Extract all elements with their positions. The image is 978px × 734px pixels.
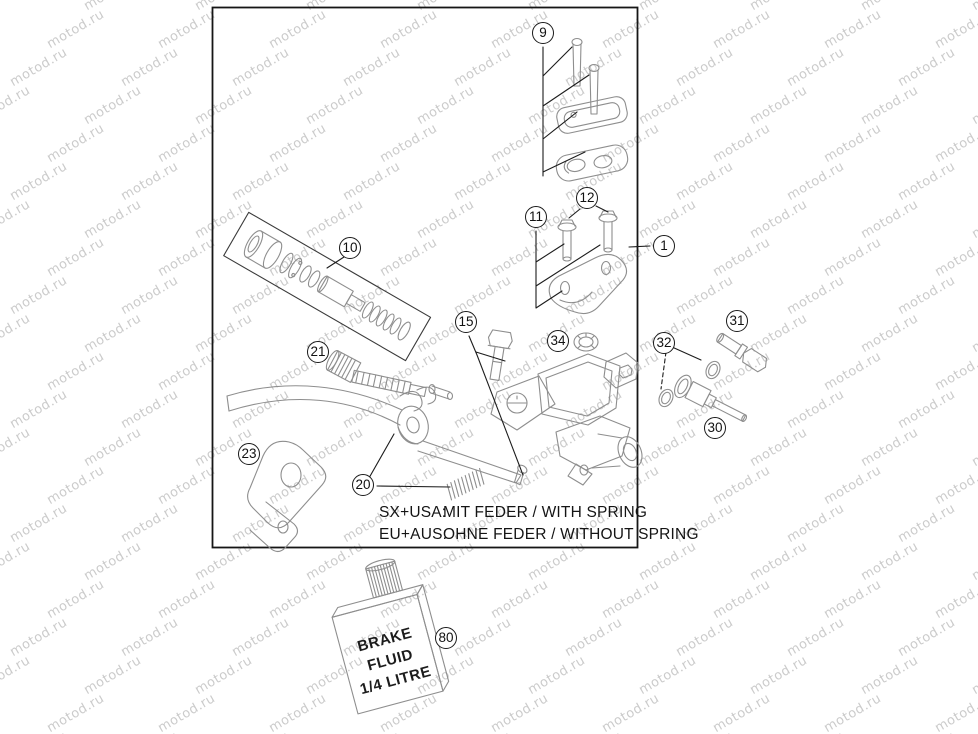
callout-12: 12 <box>576 187 598 209</box>
callout-32: 32 <box>653 332 675 354</box>
variant-note-label: SX+USA: <box>379 502 443 524</box>
callout-layer: 91011121152134323130232080 <box>0 0 978 734</box>
callout-21: 21 <box>307 341 329 363</box>
variant-note-row-sx: SX+USA: MIT FEDER / WITH SPRING <box>379 502 699 524</box>
callout-9: 9 <box>532 22 554 44</box>
variant-note-label: EU+AUS: <box>379 524 443 546</box>
variant-note-text: OHNE FEDER / WITHOUT SPRING <box>443 524 699 546</box>
callout-20: 20 <box>352 474 374 496</box>
callout-30: 30 <box>704 417 726 439</box>
callout-31: 31 <box>726 310 748 332</box>
callout-15: 15 <box>455 311 477 333</box>
callout-11: 11 <box>525 206 547 228</box>
callout-10: 10 <box>339 237 361 259</box>
callout-80: 80 <box>435 627 457 649</box>
variant-note-row-eu: EU+AUS: OHNE FEDER / WITHOUT SPRING <box>379 524 699 546</box>
callout-34: 34 <box>547 330 569 352</box>
variant-note: SX+USA: MIT FEDER / WITH SPRING EU+AUS: … <box>379 502 699 546</box>
callout-23: 23 <box>238 443 260 465</box>
parts-diagram-page: motod.rumotod.rumotod.rumotod.rumotod.ru… <box>0 0 978 734</box>
callout-1: 1 <box>653 235 675 257</box>
variant-note-text: MIT FEDER / WITH SPRING <box>443 502 647 524</box>
